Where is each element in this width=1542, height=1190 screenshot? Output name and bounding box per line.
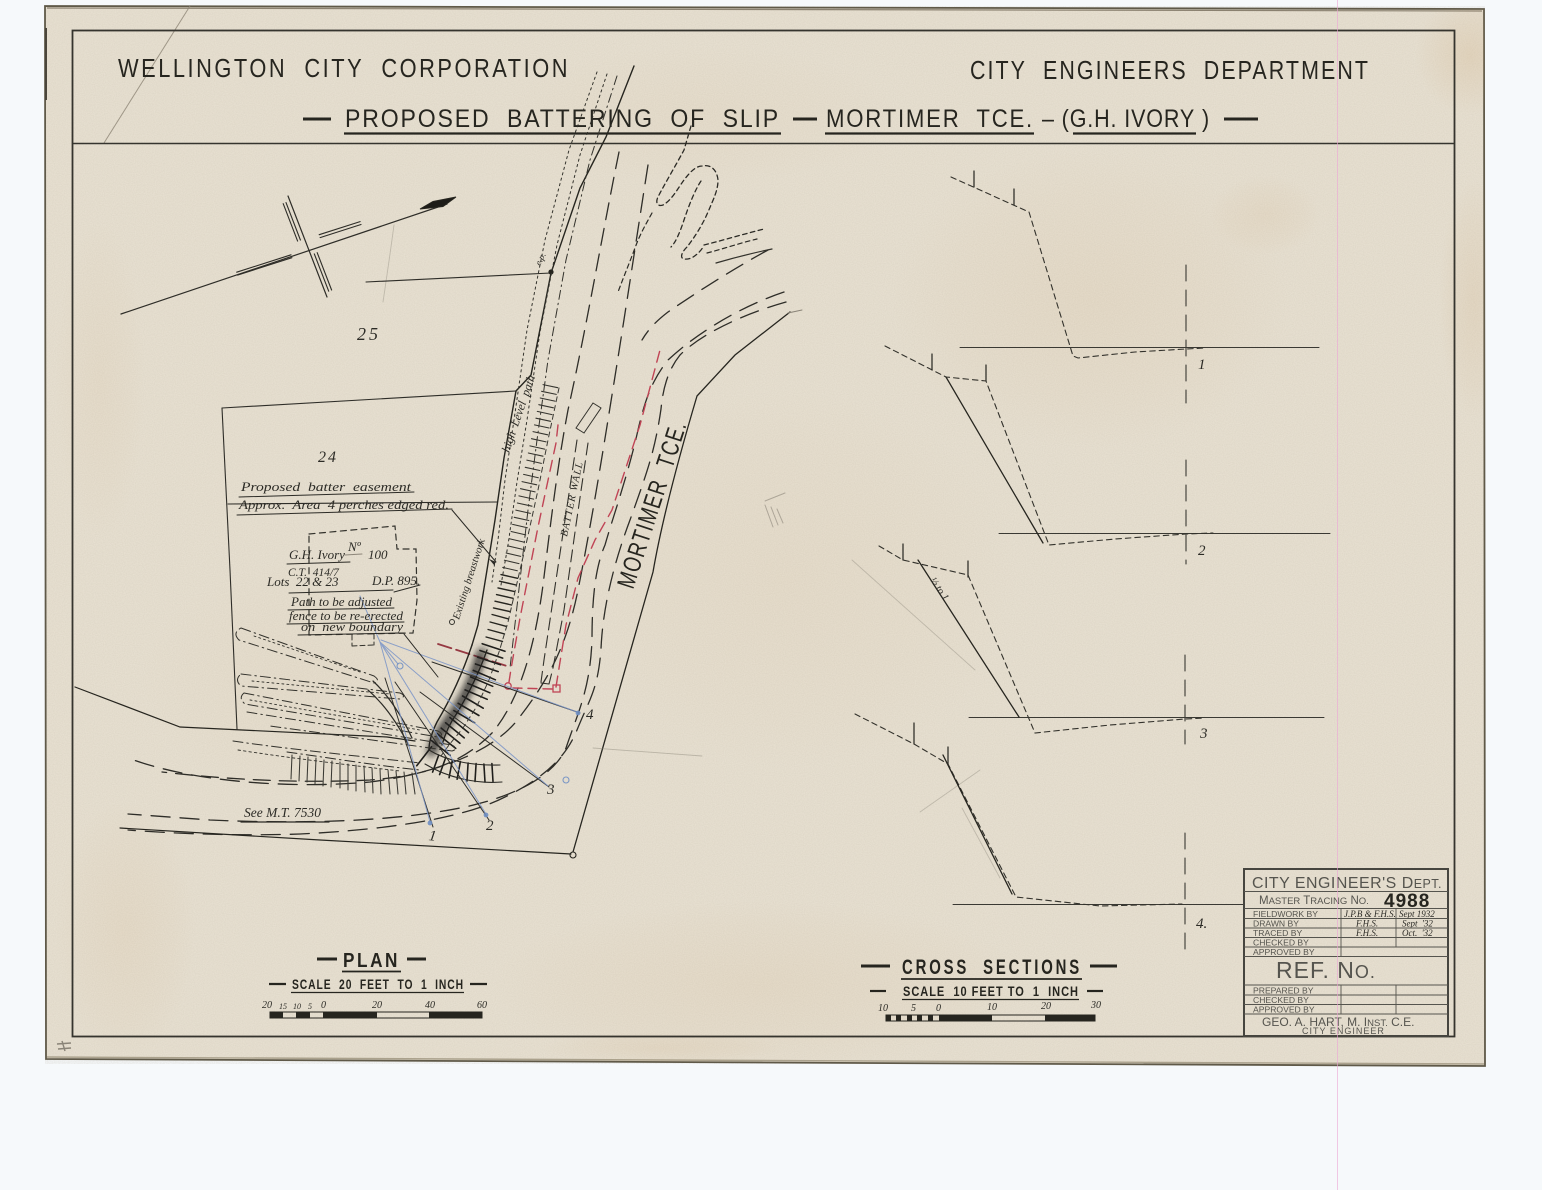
svg-text:WELLINGTON CITY CORPORATION: WELLINGTON CITY CORPORATION bbox=[118, 53, 570, 83]
svg-text:Sept 1932: Sept 1932 bbox=[1399, 909, 1435, 919]
svg-text:CITY ENGINEER'S DEPT.: CITY ENGINEER'S DEPT. bbox=[1252, 875, 1442, 892]
svg-text:APPROVED BY: APPROVED BY bbox=[1253, 947, 1315, 957]
svg-text:SCALE 10 FEET TO 1 INCH: SCALE 10 FEET TO 1 INCH bbox=[903, 984, 1079, 999]
svg-text:CROSS SECTIONS: CROSS SECTIONS bbox=[902, 956, 1082, 979]
svg-text:J.P.B & F.H.S.: J.P.B & F.H.S. bbox=[1344, 909, 1396, 919]
svg-text:PLAN: PLAN bbox=[343, 950, 400, 972]
svg-text:CHECKED BY: CHECKED BY bbox=[1253, 995, 1309, 1005]
svg-text:100: 100 bbox=[368, 547, 388, 562]
svg-text:3: 3 bbox=[546, 782, 555, 798]
svg-text:CITY ENGINEERS DEPARTMENT: CITY ENGINEERS DEPARTMENT bbox=[970, 55, 1370, 85]
svg-text:0: 0 bbox=[321, 1000, 326, 1011]
svg-text:Lots 22 & 23: Lots 22 & 23 bbox=[266, 574, 339, 589]
svg-text:TRACED BY: TRACED BY bbox=[1253, 928, 1302, 938]
svg-text:15: 15 bbox=[279, 1002, 287, 1011]
svg-text:40: 40 bbox=[425, 1000, 435, 1011]
svg-text:1: 1 bbox=[1198, 357, 1206, 373]
svg-text:10: 10 bbox=[878, 1003, 888, 1014]
svg-text:Proposed batter easement: Proposed batter easement bbox=[240, 479, 412, 494]
svg-text:MASTER TRACING NO.: MASTER TRACING NO. bbox=[1259, 895, 1369, 907]
svg-text:Path to be adjusted: Path to be adjusted bbox=[290, 594, 392, 609]
svg-text:20: 20 bbox=[1041, 1001, 1051, 1012]
svg-text:Nº: Nº bbox=[347, 539, 362, 554]
svg-text:60: 60 bbox=[477, 1000, 487, 1011]
svg-text:20: 20 bbox=[372, 1000, 382, 1011]
svg-text:Sept '32: Sept '32 bbox=[1402, 919, 1433, 929]
svg-text:D.P. 895.: D.P. 895. bbox=[371, 573, 420, 588]
svg-text:5: 5 bbox=[308, 1002, 312, 1011]
svg-text:PREPARED BY: PREPARED BY bbox=[1253, 986, 1314, 996]
svg-text:SCALE 20 FEET TO 1 INCH: SCALE 20 FEET TO 1 INCH bbox=[292, 977, 464, 992]
svg-text:5: 5 bbox=[911, 1003, 916, 1014]
svg-text:– (G.H. IVORY ): – (G.H. IVORY ) bbox=[1042, 105, 1210, 133]
svg-text:2: 2 bbox=[1198, 543, 1206, 559]
svg-text:FIELDWORK BY: FIELDWORK BY bbox=[1253, 909, 1318, 919]
svg-text:PROPOSED BATTERING OF SLIP: PROPOSED BATTERING OF SLIP bbox=[345, 105, 780, 133]
svg-text:4.: 4. bbox=[1196, 916, 1207, 932]
svg-text:on new boundary: on new boundary bbox=[301, 619, 403, 634]
svg-text:24: 24 bbox=[318, 449, 338, 466]
svg-text:CITY ENGINEER: CITY ENGINEER bbox=[1302, 1026, 1385, 1036]
svg-text:CHECKED BY: CHECKED BY bbox=[1253, 938, 1309, 948]
svg-text:30: 30 bbox=[1090, 1000, 1101, 1011]
svg-text:25: 25 bbox=[357, 324, 381, 344]
svg-text:Oct. '32: Oct. '32 bbox=[1402, 928, 1433, 938]
svg-text:F.H.S.: F.H.S. bbox=[1355, 919, 1378, 929]
svg-text:10: 10 bbox=[293, 1002, 301, 1011]
svg-text:3: 3 bbox=[1199, 726, 1208, 742]
svg-text:G.H. Ivory: G.H. Ivory bbox=[289, 547, 345, 562]
svg-text:2: 2 bbox=[486, 818, 494, 834]
svg-text:See M.T. 7530: See M.T. 7530 bbox=[244, 805, 321, 820]
svg-text:MORTIMER TCE.: MORTIMER TCE. bbox=[826, 105, 1034, 133]
svg-text:DRAWN BY: DRAWN BY bbox=[1253, 919, 1299, 929]
svg-text:0: 0 bbox=[936, 1003, 941, 1014]
svg-text:F.H.S.: F.H.S. bbox=[1355, 928, 1378, 938]
svg-text:10: 10 bbox=[987, 1002, 997, 1013]
svg-text:20: 20 bbox=[262, 1000, 272, 1011]
svg-text:4: 4 bbox=[586, 707, 594, 723]
svg-text:APPROVED BY: APPROVED BY bbox=[1253, 1005, 1315, 1015]
